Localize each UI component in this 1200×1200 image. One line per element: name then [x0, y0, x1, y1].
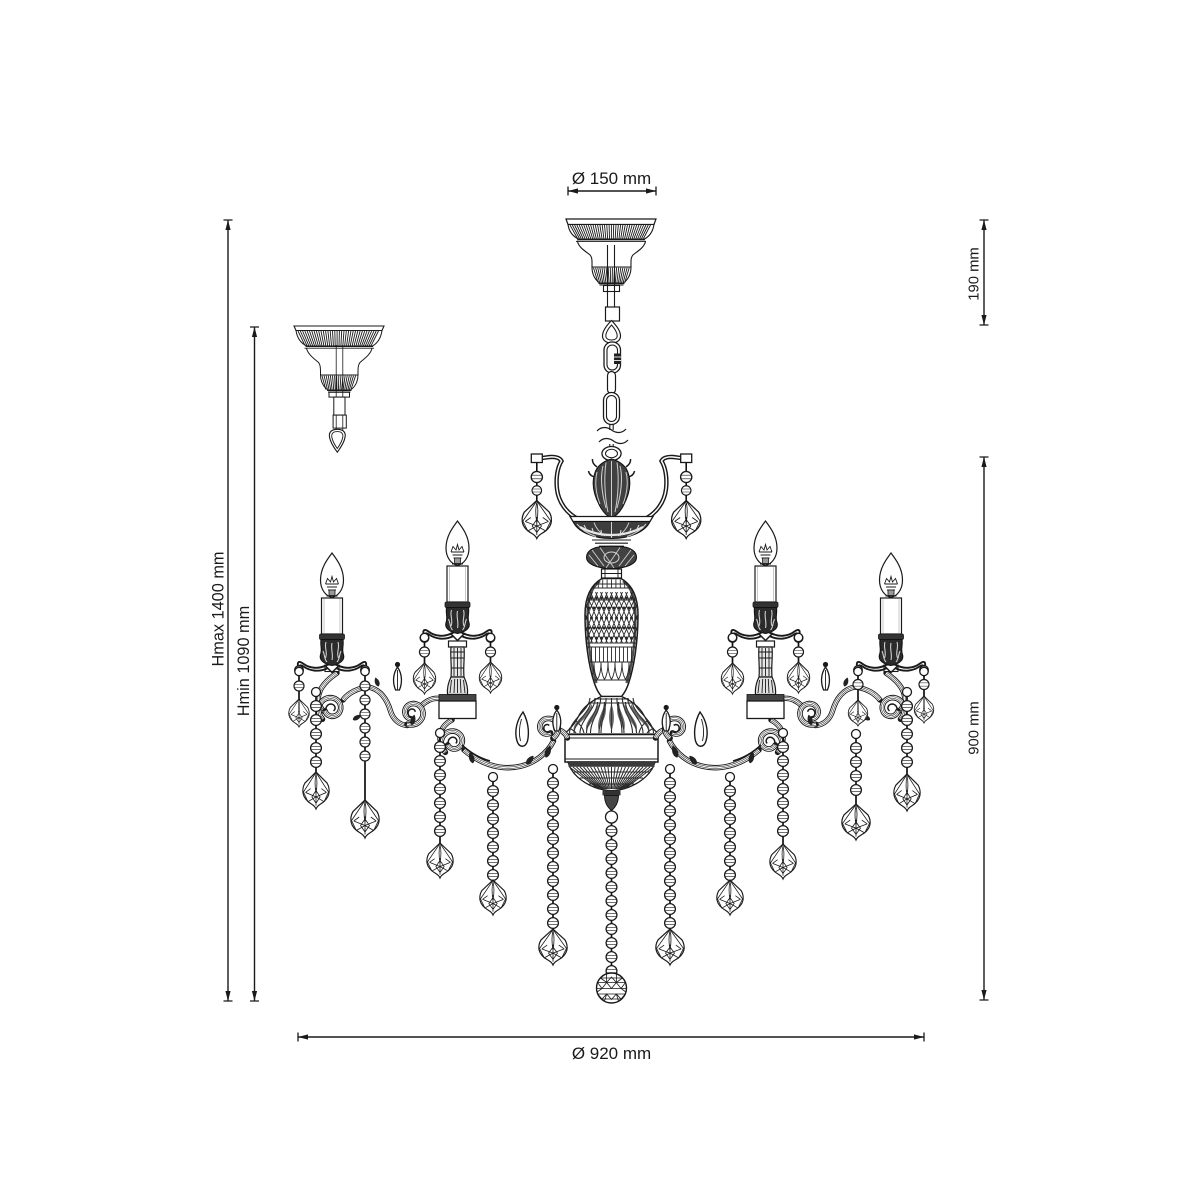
- svg-text:Hmax 1400 mm: Hmax 1400 mm: [210, 552, 228, 667]
- svg-text:Hmin 1090 mm: Hmin 1090 mm: [235, 606, 253, 716]
- svg-text:Ø 150 mm: Ø 150 mm: [572, 169, 651, 188]
- svg-text:900 mm: 900 mm: [967, 701, 983, 754]
- svg-text:190 mm: 190 mm: [967, 247, 983, 300]
- svg-text:Ø 920 mm: Ø 920 mm: [572, 1044, 651, 1063]
